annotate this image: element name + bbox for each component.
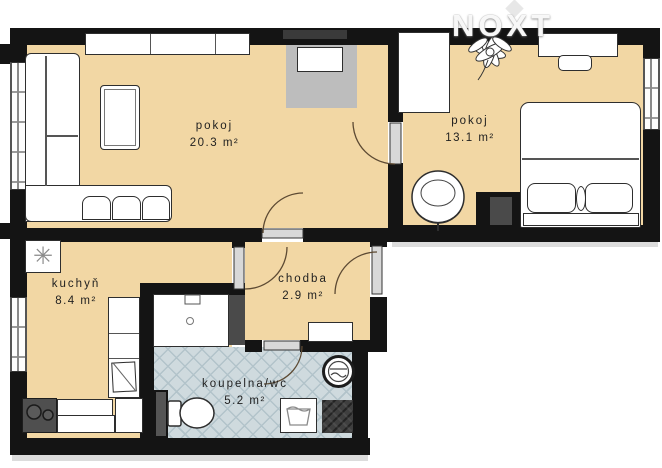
room-area: 2.9 m² [250, 288, 356, 305]
washing-machine-drum [329, 362, 349, 382]
room-name: kuchyň [18, 276, 134, 293]
floor-plan: ✳ [0, 0, 662, 468]
room-area: 13.1 m² [410, 130, 530, 147]
room-area: 8.4 m² [18, 293, 134, 310]
sink-diagonal [113, 363, 135, 390]
watermark-logo: NOXT [452, 8, 554, 44]
round-chair-icon [412, 171, 464, 231]
room-area: 20.3 m² [152, 135, 277, 152]
room-name: chodba [250, 271, 356, 288]
room-label-livingroom: pokoj 20.3 m² [152, 118, 277, 151]
room-label-kitchen: kuchyň 8.4 m² [18, 276, 134, 309]
bathtub-fittings [185, 295, 200, 325]
room-name: pokoj [410, 113, 530, 130]
room-name: koupelna/wc [178, 376, 312, 393]
room-name: pokoj [152, 118, 277, 135]
basket-glyph [287, 407, 310, 425]
door-bedroom [353, 122, 401, 164]
stove-burners [27, 405, 53, 420]
door-livingroom-hall [262, 193, 303, 238]
room-label-hallway: chodba 2.9 m² [250, 271, 356, 304]
room-area: 5.2 m² [178, 393, 312, 410]
lineart-overlay [0, 0, 662, 468]
room-label-bathroom: koupelna/wc 5.2 m² [178, 376, 312, 409]
room-label-bedroom: pokoj 13.1 m² [410, 113, 530, 146]
